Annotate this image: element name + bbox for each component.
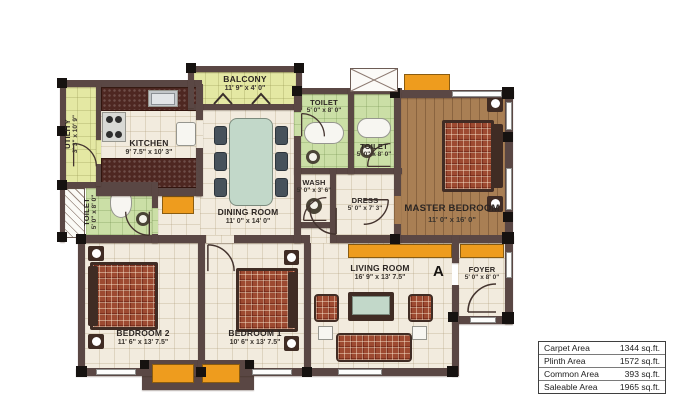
column-marker [245,360,254,369]
wall-segment [452,235,459,263]
living-wardrobe [348,244,452,258]
room-dims: 10' 6" x 13' 7.5" [202,339,308,348]
area-value: 1344 sq.ft. [620,343,665,353]
area-label: Common Area [539,369,625,379]
door-arc-icon [302,196,328,222]
nook-wardrobe [152,364,194,383]
living-room-label: LIVING ROOM 16' 9" x 13' 7.5" [308,263,452,282]
nightstand [284,250,299,265]
nightstand [88,246,104,261]
side-table [318,326,333,340]
floor-plan-canvas: UTILITY 3' 3" x 10' 9" KITCHEN 9' 7.5" x… [0,0,700,420]
armchair [408,294,433,322]
room-name: DINING ROOM [200,207,296,218]
area-value: 393 sq.ft. [625,369,665,379]
column-marker [503,132,513,142]
master-headboard [492,124,503,188]
section-marker-a: A [433,263,444,280]
bedroom2-bed [90,262,158,330]
balcony-door-chevron-icon [212,92,234,106]
room-name: TOILET [350,142,398,151]
balcony-door-chevron-icon [250,92,272,106]
utility-label: UTILITY 3' 3" x 10' 9" [63,94,99,174]
area-table: Carpet Area 1344 sq.ft. Plinth Area 1572… [538,341,666,394]
bathtub [357,118,391,138]
wash-label: WASH 5' 0" x 3' 6" [288,178,340,196]
window [506,168,512,210]
room-dims: 5' 0" x 3' 6" [288,187,340,195]
lamp [92,249,101,258]
column-marker [447,366,458,377]
column-marker [390,234,400,244]
room-name: DRESS [336,196,394,205]
entrance-opening [470,317,496,323]
burner [106,131,113,138]
room-name: WASH [288,178,340,187]
toilet-mid-label: TOILET 5' 0" x 8' 0" [350,142,398,160]
room-dims: 5' 0" x 8' 0" [460,274,504,282]
area-label: Plinth Area [539,356,620,366]
master-bed [442,120,494,192]
wall-segment [76,235,310,243]
room-dims: 5' 0" x 7' 3" [336,205,394,213]
wall-segment [188,66,302,72]
room-dims: 5' 0" x 8' 0" [91,184,99,240]
room-name: BALCONY [192,74,298,85]
door-opening [206,235,234,243]
column-marker [302,367,312,377]
wall-segment [452,285,459,376]
kitchen-label: KITCHEN 9' 7.5" x 10' 3" [100,138,198,157]
window [506,252,512,278]
kitchen-sink [148,90,178,107]
dining-chair [275,178,288,197]
sink-basin [151,93,175,105]
wash-basin [306,150,320,164]
nook-wardrobe [202,364,240,383]
lamp [287,253,296,262]
sofa [336,333,412,362]
window [506,102,512,130]
balcony-label: BALCONY 11' 9" x 4' 0" [192,74,298,93]
burner [106,116,113,123]
window [252,369,292,375]
wall-segment [96,188,202,196]
wall-segment [60,80,202,87]
area-value: 1572 sq.ft. [620,356,665,366]
area-table-row: Saleable Area 1965 sq.ft. [539,380,665,393]
room-dims: 11' 6" x 13' 7.5" [84,339,202,348]
burner [115,116,122,123]
room-name: MASTER BEDROOM [398,203,506,215]
room-name: TOILET [82,184,91,240]
column-marker [57,78,67,88]
area-table-row: Carpet Area 1344 sq.ft. [539,342,665,354]
column-marker [76,366,87,377]
door-arc-icon [206,243,236,273]
room-name: TOILET [300,98,348,107]
foyer-label: FOYER 5' 0" x 8' 0" [460,265,504,283]
coffee-table [348,292,394,321]
shaft-hatch-icon [350,68,398,92]
dining-table [229,118,273,206]
dining-chair [214,152,227,171]
dining-chair [214,178,227,197]
door-opening [152,208,158,234]
column-marker [57,232,67,242]
area-table-row: Common Area 393 sq.ft. [539,367,665,380]
toilet-top-label: TOILET 5' 0" x 8' 0" [300,98,348,116]
dining-chair [275,126,288,145]
room-dims: 3' 3" x 10' 9" [72,94,80,174]
dining-chair [214,126,227,145]
column-marker [294,63,304,73]
lamp [491,99,500,108]
wall-segment [198,243,205,372]
column-marker [196,367,206,377]
room-dims: 5' 0" x 8' 0" [350,151,398,159]
burner [115,131,122,138]
room-name: KITCHEN [100,138,198,149]
wall-segment [78,235,85,375]
area-label: Saleable Area [539,382,620,392]
column-marker [186,63,196,73]
window [96,369,136,375]
column-marker [502,87,514,99]
wall-segment [336,235,514,243]
area-label: Carpet Area [539,343,620,353]
area-table-row: Plinth Area 1572 sq.ft. [539,354,665,367]
room-dims: 16' 9" x 13' 7.5" [308,274,452,283]
bedroom2-label: BEDROOM 2 11' 6" x 13' 7.5" [84,328,202,347]
column-marker [448,312,458,322]
wall-segment [348,88,354,174]
door-arc-icon [124,210,151,237]
bedroom1-headboard [288,272,298,328]
door-arc-icon [300,112,326,138]
column-marker [57,180,67,190]
dining-room-label: DINING ROOM 11' 0" x 14' 0" [200,207,296,226]
dining-chair [275,152,288,171]
column-marker [502,312,514,324]
room-name: UTILITY [63,94,72,174]
column-marker [140,360,149,369]
bedroom2-headboard [88,266,98,326]
coffee-table-glass [352,296,390,315]
dress-label: DRESS 5' 0" x 7' 3" [336,196,394,214]
armchair [314,294,339,322]
side-table [412,326,427,340]
window [452,91,502,97]
room-dims: 11' 9" x 4' 0" [192,85,298,94]
window [338,369,382,375]
foyer-cabinet [460,244,504,258]
room-dims: 11' 0" x 16' 0" [398,215,506,224]
room-dims: 11' 0" x 14' 0" [200,218,296,227]
column-marker [502,232,514,244]
nightstand [487,96,503,112]
toilet-left-label: TOILET 5' 0" x 8' 0" [82,184,110,240]
room-name: BEDROOM 1 [202,328,308,339]
area-value: 1965 sq.ft. [620,382,665,392]
room-name: BEDROOM 2 [84,328,202,339]
room-name: FOYER [460,265,504,274]
room-name: LIVING ROOM [308,263,452,274]
room-dims: 5' 0" x 8' 0" [300,107,348,115]
master-bedroom-label: MASTER BEDROOM 11' 0" x 16' 0" [398,203,506,224]
room-dims: 9' 7.5" x 10' 3" [100,149,198,158]
door-arc-icon [466,282,498,314]
bedroom1-label: BEDROOM 1 10' 6" x 13' 7.5" [202,328,308,347]
corridor-cabinet [162,196,194,214]
wall-segment [188,104,302,110]
